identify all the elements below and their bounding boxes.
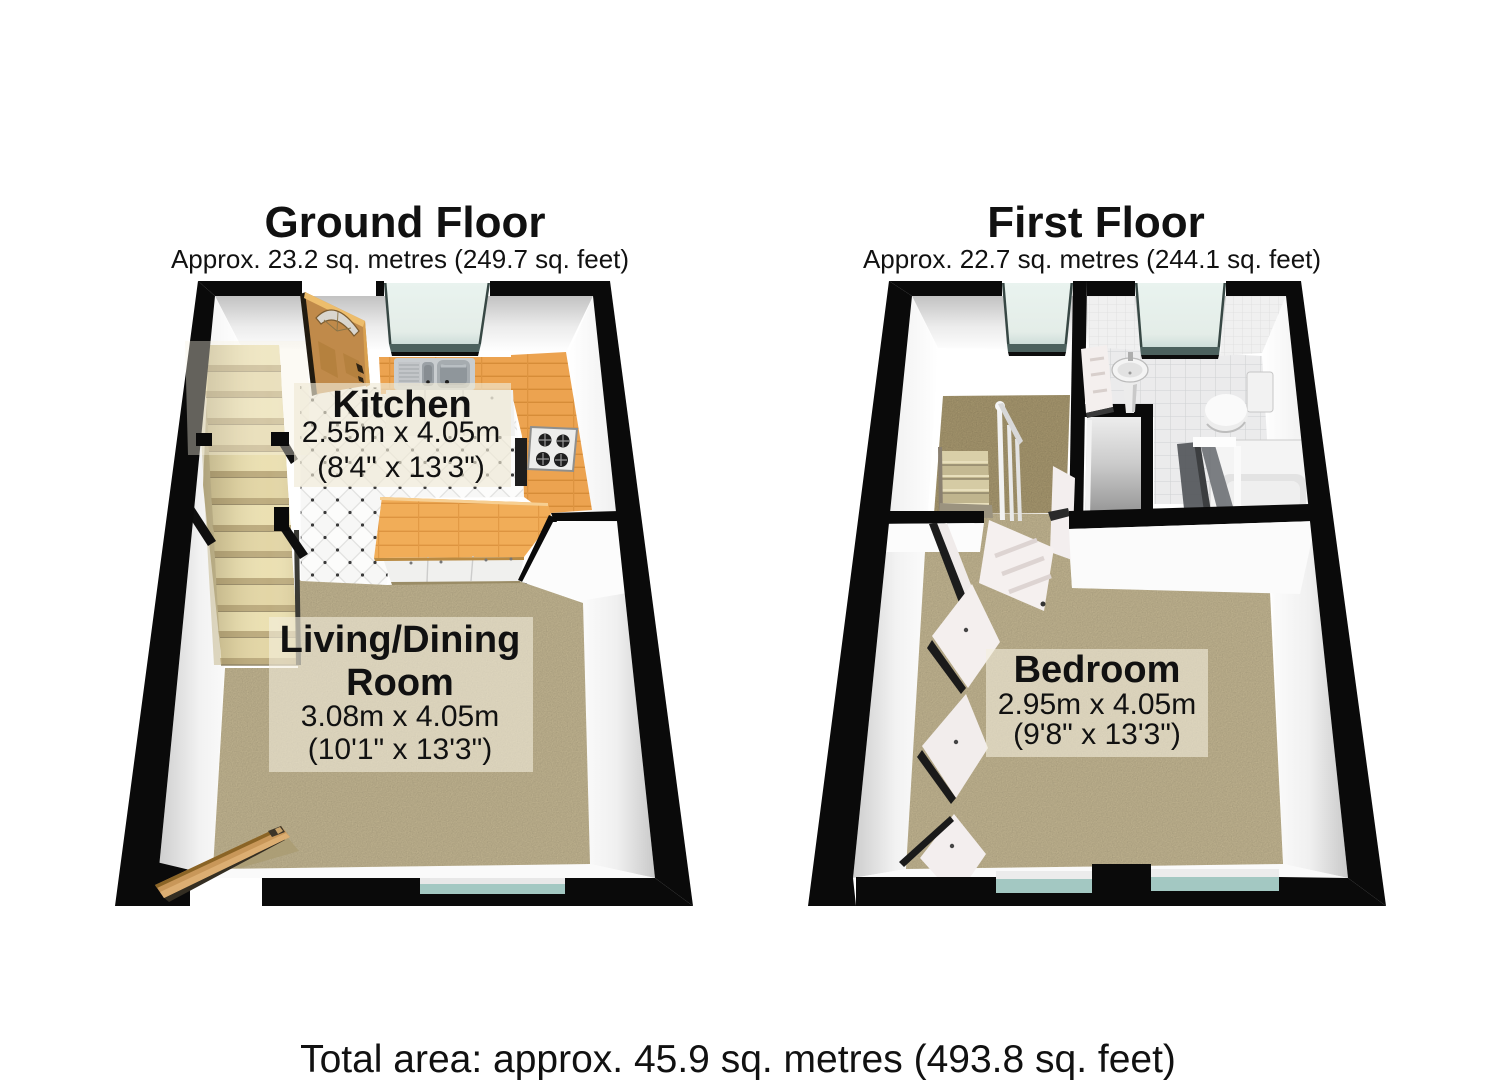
- svg-text:(9'8" x 13'3"): (9'8" x 13'3"): [1013, 718, 1181, 751]
- svg-text:Bedroom: Bedroom: [1014, 649, 1181, 691]
- svg-text:Living/Dining: Living/Dining: [280, 619, 521, 661]
- svg-text:2.95m x 4.05m: 2.95m x 4.05m: [998, 688, 1196, 721]
- svg-text:Approx. 23.2 sq. metres (249.7: Approx. 23.2 sq. metres (249.7 sq. feet): [171, 244, 629, 274]
- svg-text:3.08m x 4.05m: 3.08m x 4.05m: [301, 700, 499, 733]
- svg-text:(8'4" x 13'3"): (8'4" x 13'3"): [317, 451, 485, 484]
- svg-text:Room: Room: [346, 662, 454, 704]
- svg-text:First Floor: First Floor: [987, 198, 1205, 247]
- svg-text:2.55m x 4.05m: 2.55m x 4.05m: [302, 416, 500, 449]
- svg-text:(10'1" x 13'3"): (10'1" x 13'3"): [308, 733, 493, 766]
- svg-text:Total area: approx. 45.9 sq. m: Total area: approx. 45.9 sq. metres (493…: [300, 1038, 1176, 1081]
- svg-text:Ground Floor: Ground Floor: [264, 198, 545, 247]
- svg-text:Approx. 22.7 sq. metres (244.1: Approx. 22.7 sq. metres (244.1 sq. feet): [863, 244, 1321, 274]
